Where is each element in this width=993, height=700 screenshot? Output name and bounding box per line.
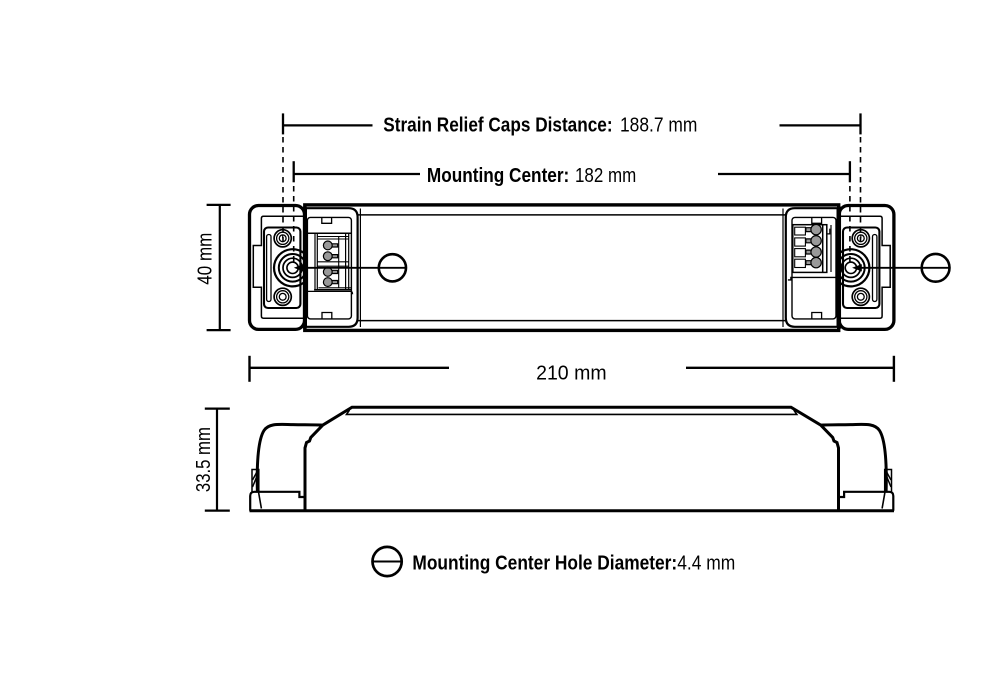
svg-text:Mounting Center Hole Diameter:: Mounting Center Hole Diameter:4.4 mm bbox=[412, 552, 735, 574]
svg-text:Strain Relief Caps Distance:18: Strain Relief Caps Distance:188.7 mm bbox=[383, 115, 697, 137]
svg-text:210 mm: 210 mm bbox=[536, 363, 607, 385]
svg-text:33.5 mm: 33.5 mm bbox=[193, 427, 215, 492]
svg-text:40 mm: 40 mm bbox=[195, 233, 217, 285]
svg-text:Mounting Center:182 mm: Mounting Center:182 mm bbox=[427, 165, 636, 187]
